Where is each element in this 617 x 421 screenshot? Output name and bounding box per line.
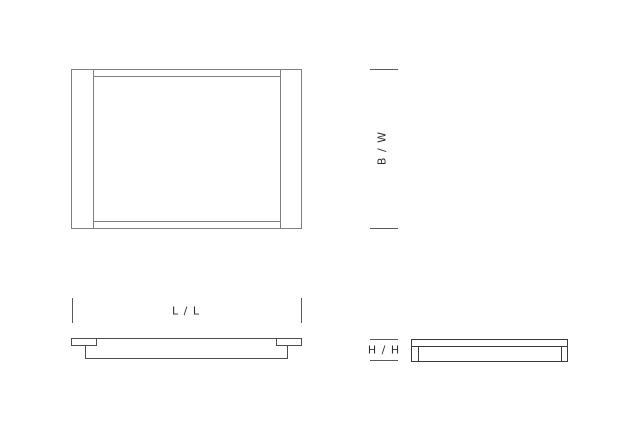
front-left-handle-tab <box>71 338 97 346</box>
plan-right-handle-edge <box>280 69 281 229</box>
width-dim-bottom-tick <box>370 228 398 229</box>
front-top-surface-line <box>71 338 302 339</box>
plan-outer-outline <box>71 69 302 229</box>
plan-left-handle-edge <box>93 69 94 229</box>
side-outer-outline <box>411 339 568 362</box>
front-base-bottom-line <box>85 358 288 359</box>
side-left-wall-edge <box>418 346 419 361</box>
height-dim-label: H / H <box>368 345 400 356</box>
length-dim-label: L / L <box>172 306 200 317</box>
length-dim-right-tick <box>301 298 302 323</box>
side-right-wall-edge <box>561 346 562 361</box>
height-dim-top-tick <box>370 339 398 340</box>
plan-bottom-rim-line <box>93 221 280 222</box>
front-right-handle-tab <box>276 338 302 346</box>
width-dim-label: B / W <box>377 131 388 165</box>
technical-drawing-canvas: B / W L / L H / H <box>0 0 617 421</box>
front-base-right-wall <box>287 345 288 359</box>
height-dim-bottom-tick <box>370 360 398 361</box>
side-rim-line <box>411 346 568 347</box>
length-dim-left-tick <box>72 298 73 323</box>
plan-top-rim-line <box>93 76 280 77</box>
width-dim-top-tick <box>370 69 398 70</box>
front-base-left-wall <box>85 345 86 359</box>
